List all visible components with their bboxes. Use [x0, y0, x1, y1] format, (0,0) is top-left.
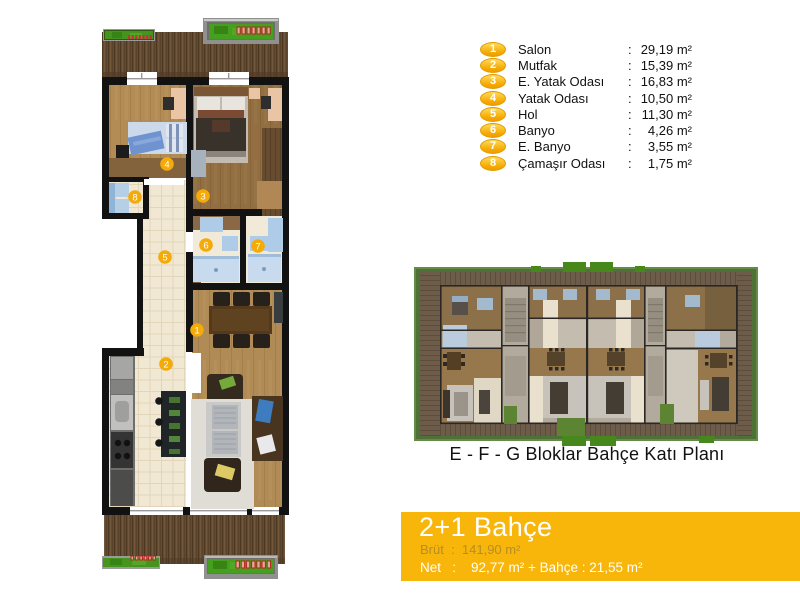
svg-text:1: 1 — [194, 326, 199, 337]
svg-text:8: 8 — [132, 193, 137, 204]
svg-text:6: 6 — [203, 241, 208, 252]
svg-text:7: 7 — [255, 242, 260, 253]
svg-text:2: 2 — [163, 360, 168, 371]
svg-text:3: 3 — [200, 192, 205, 203]
svg-text:4: 4 — [164, 160, 169, 171]
svg-text:5: 5 — [162, 253, 167, 264]
